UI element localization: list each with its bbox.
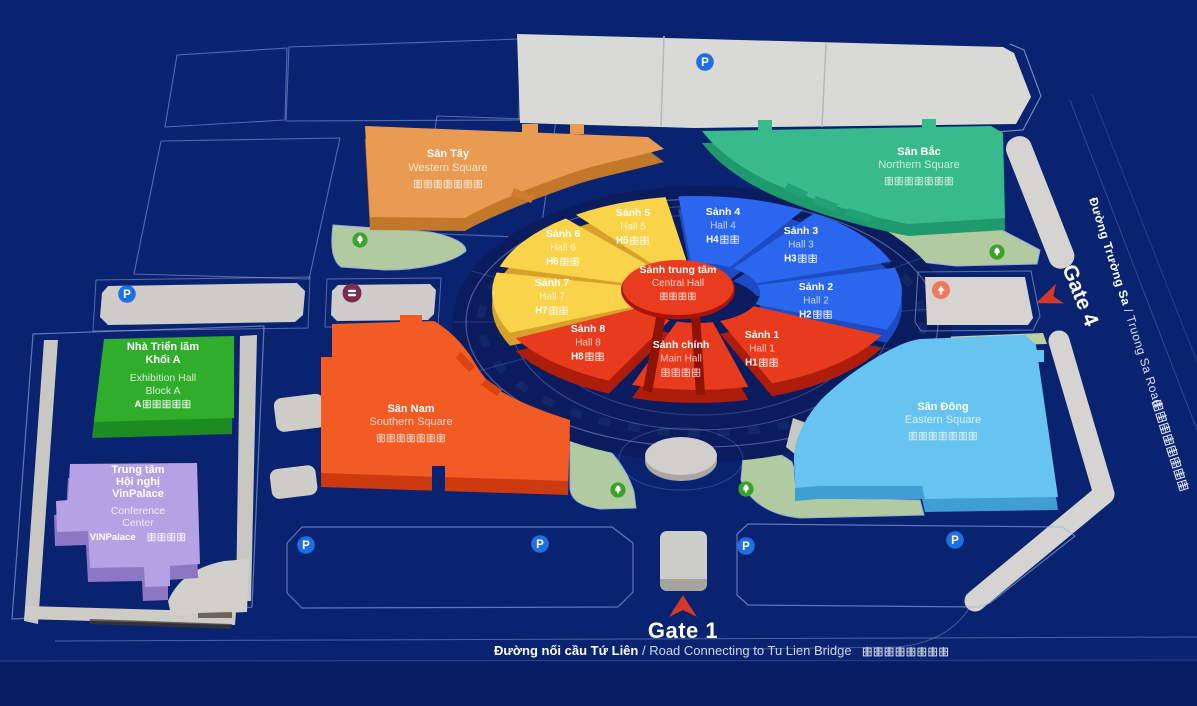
svg-text:Hall 3: Hall 3 <box>788 240 814 251</box>
svg-text:Sảnh trung tâm: Sảnh trung tâm <box>639 264 716 276</box>
svg-text:A: A <box>135 399 142 410</box>
svg-text:Hall 4: Hall 4 <box>710 221 736 232</box>
svg-text:H8: H8 <box>571 352 584 363</box>
svg-text:Block A: Block A <box>145 385 180 397</box>
svg-text:P: P <box>123 289 131 301</box>
svg-text:P: P <box>742 541 750 553</box>
svg-text:H2: H2 <box>799 310 812 321</box>
svg-text:H6: H6 <box>546 257 559 268</box>
svg-text:Southern Square: Southern Square <box>369 416 452 428</box>
svg-text:Sân Tây: Sân Tây <box>427 148 470 160</box>
svg-text:Exhibition Hall: Exhibition Hall <box>130 372 197 384</box>
svg-text:Main Hall: Main Hall <box>660 354 702 365</box>
svg-text:Conference: Conference <box>111 505 165 517</box>
svg-text:Sảnh 2: Sảnh 2 <box>799 281 834 293</box>
svg-text:Nhà Triển lãm: Nhà Triển lãm <box>127 341 199 353</box>
svg-text:P: P <box>701 57 709 69</box>
svg-text:Sảnh chính: Sảnh chính <box>653 339 710 351</box>
svg-text:Hall 5: Hall 5 <box>620 222 646 233</box>
svg-text:Đường nối cầu Tứ Liên / Road C: Đường nối cầu Tứ Liên / Road Connecting … <box>494 643 852 658</box>
svg-text:P: P <box>951 535 959 547</box>
svg-text:Trung tâm: Trung tâm <box>111 464 164 476</box>
svg-text:Sân Đông: Sân Đông <box>917 401 968 413</box>
svg-text:Gate 1: Gate 1 <box>648 618 718 643</box>
svg-text:Northern Square: Northern Square <box>878 159 959 171</box>
svg-text:Sảnh 6: Sảnh 6 <box>546 228 581 240</box>
svg-text:P: P <box>536 539 544 551</box>
svg-text:Eastern Square: Eastern Square <box>905 414 981 426</box>
svg-text:Sân Bắc: Sân Bắc <box>897 145 940 158</box>
svg-text:Sân Nam: Sân Nam <box>387 403 434 415</box>
svg-text:Hội nghị: Hội nghị <box>116 476 160 488</box>
svg-text:Central Hall: Central Hall <box>652 278 704 289</box>
svg-text:H1: H1 <box>745 358 758 369</box>
svg-text:Sảnh 4: Sảnh 4 <box>706 206 741 218</box>
svg-text:Sảnh 5: Sảnh 5 <box>616 207 651 219</box>
svg-text:Sảnh 1: Sảnh 1 <box>745 329 780 341</box>
svg-text:Sảnh 3: Sảnh 3 <box>784 225 819 237</box>
svg-text:Hall 7: Hall 7 <box>539 292 565 303</box>
svg-text:H7: H7 <box>535 306 548 317</box>
svg-text:VinPalace: VinPalace <box>112 488 164 500</box>
svg-text:Sảnh 7: Sảnh 7 <box>535 277 570 289</box>
svg-text:Hall 1: Hall 1 <box>749 344 775 355</box>
svg-text:H4: H4 <box>706 235 719 246</box>
svg-text:Hall 6: Hall 6 <box>550 243 576 254</box>
svg-text:Sảnh 8: Sảnh 8 <box>571 323 606 335</box>
svg-text:VINPalace: VINPalace <box>90 532 136 543</box>
svg-text:H3: H3 <box>784 254 797 265</box>
svg-text:Center: Center <box>122 517 154 529</box>
svg-text:P: P <box>302 540 310 552</box>
svg-text:H5: H5 <box>616 236 629 247</box>
svg-text:Hall 8: Hall 8 <box>575 338 601 349</box>
svg-text:Hall 2: Hall 2 <box>803 296 829 307</box>
svg-text:Western Square: Western Square <box>408 162 487 174</box>
svg-text:Khối A: Khối A <box>145 354 180 366</box>
